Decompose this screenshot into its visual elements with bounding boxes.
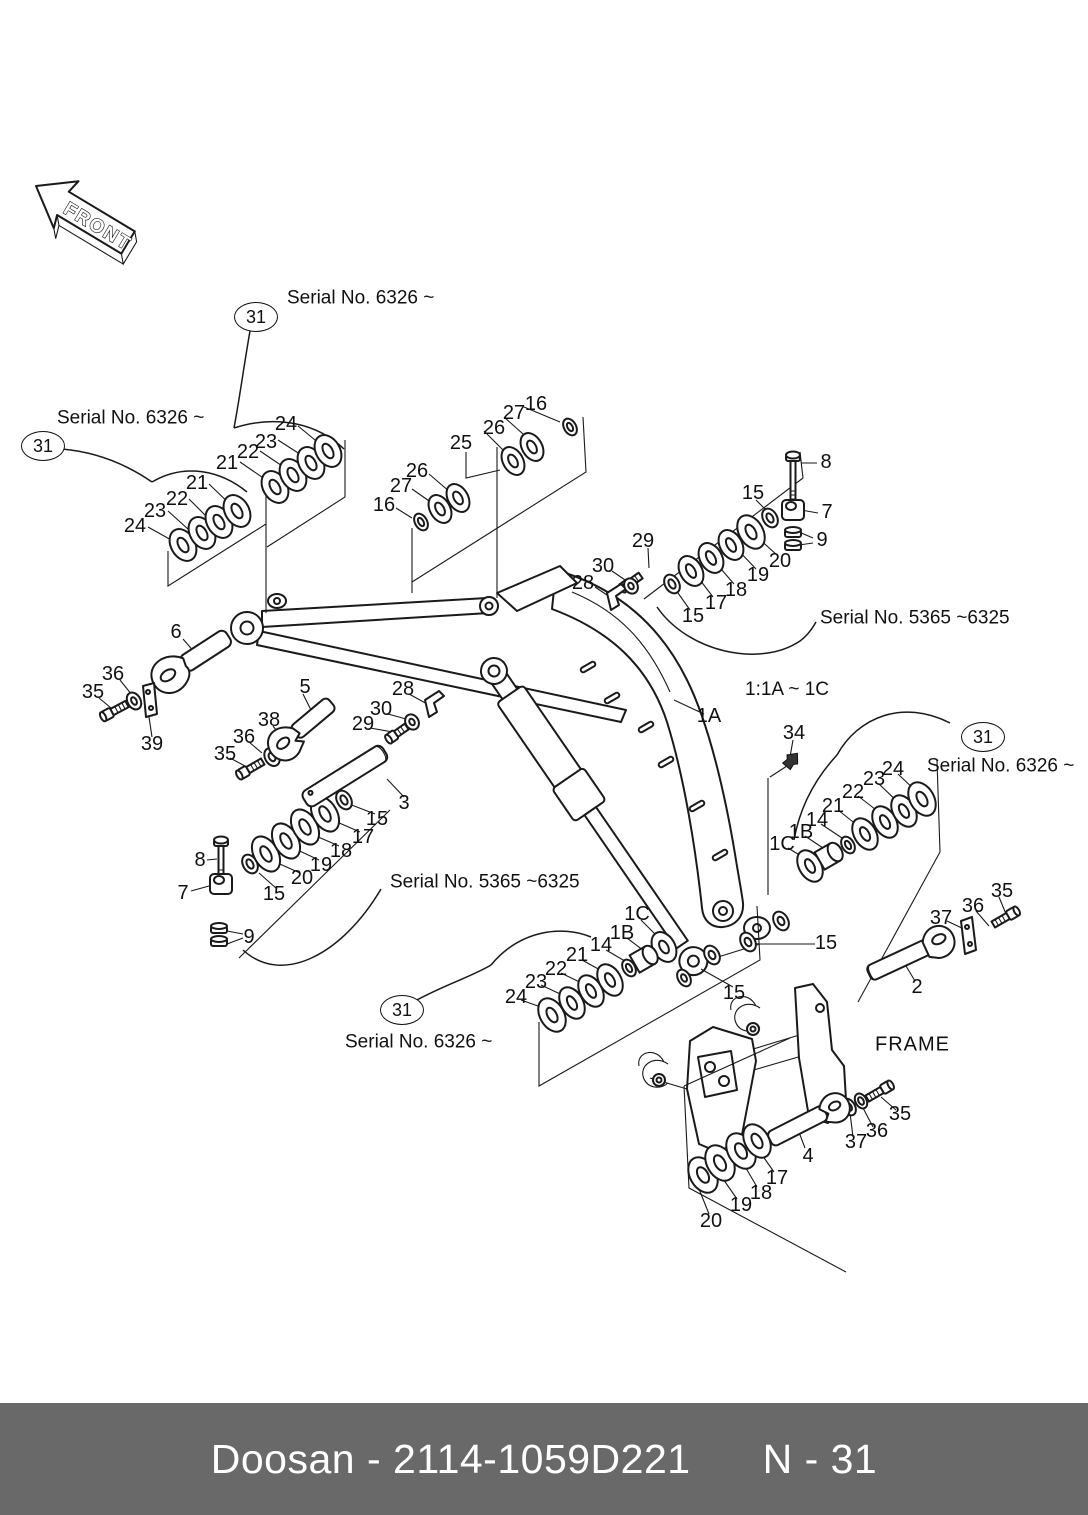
plate-39 [143,683,157,717]
footer-doc-code: Doosan - 2114-1059D221 [211,1436,691,1483]
boom-assembly [231,566,770,939]
footer-bar: Doosan - 2114-1059D221 N - 31 [0,1403,1088,1515]
bolt-35 [99,700,130,723]
bolt-35 [235,757,266,780]
pin-5 [261,691,343,767]
bushing-7 [210,874,232,894]
plate-37 [961,917,976,954]
nut-9 [211,923,227,933]
nut-9 [785,527,801,537]
exploded-view-drawing: FRONT [0,0,1088,1515]
pin-6 [145,622,239,700]
bracket-28 [425,691,444,717]
bolt-8 [786,452,800,506]
footer-page-ref: N - 31 [763,1436,878,1483]
front-arrow-icon: FRONT [18,164,148,276]
nut-9 [785,540,801,550]
bushing-7 [782,500,804,520]
pin-2 [862,921,959,989]
nut-9 [211,936,227,946]
parts-diagram-page: FRONT [0,0,1088,1515]
bolt-35 [991,905,1022,928]
bolt-35 [865,1079,896,1102]
